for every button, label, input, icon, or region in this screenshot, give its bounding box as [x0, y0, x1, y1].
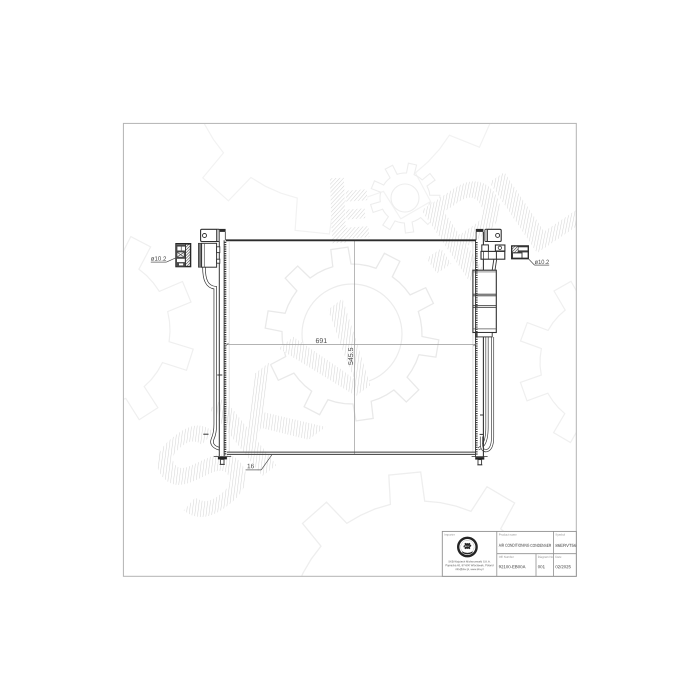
svg-text:SKV: SKV	[465, 545, 470, 548]
svg-text:ø10.2: ø10.2	[535, 259, 550, 266]
svg-text:Importer: Importer	[444, 533, 455, 537]
svg-text:02/2025: 02/2025	[555, 564, 571, 569]
svg-text:Papiezka 65, 87-800 Wloclawek,: Papiezka 65, 87-800 Wloclawek, Poland	[445, 564, 494, 567]
svg-text:info@skv.pl, www.skv.pl: info@skv.pl, www.skv.pl	[455, 568, 484, 571]
svg-text:Product name: Product name	[499, 533, 517, 537]
svg-text:001: 001	[538, 564, 546, 569]
svg-text:691: 691	[315, 338, 327, 345]
svg-text:Diagram No.: Diagram No.	[538, 555, 554, 559]
svg-text:OE Number: OE Number	[499, 555, 514, 559]
svg-text:86ERVT56: 86ERVT56	[555, 543, 577, 548]
svg-text:16: 16	[247, 463, 255, 470]
svg-text:Symbol: Symbol	[555, 533, 565, 537]
svg-text:545.5: 545.5	[348, 347, 355, 365]
svg-text:AIR CONDITIONING CONDENSER: AIR CONDITIONING CONDENSER	[499, 543, 552, 548]
svg-text:Date: Date	[555, 555, 562, 559]
svg-text:SKB Wojciech Michorzewski S.K.: SKB Wojciech Michorzewski S.K.A.	[448, 560, 490, 563]
svg-text:92100-EB00A: 92100-EB00A	[499, 564, 526, 569]
svg-text:ø10.2: ø10.2	[151, 256, 167, 263]
